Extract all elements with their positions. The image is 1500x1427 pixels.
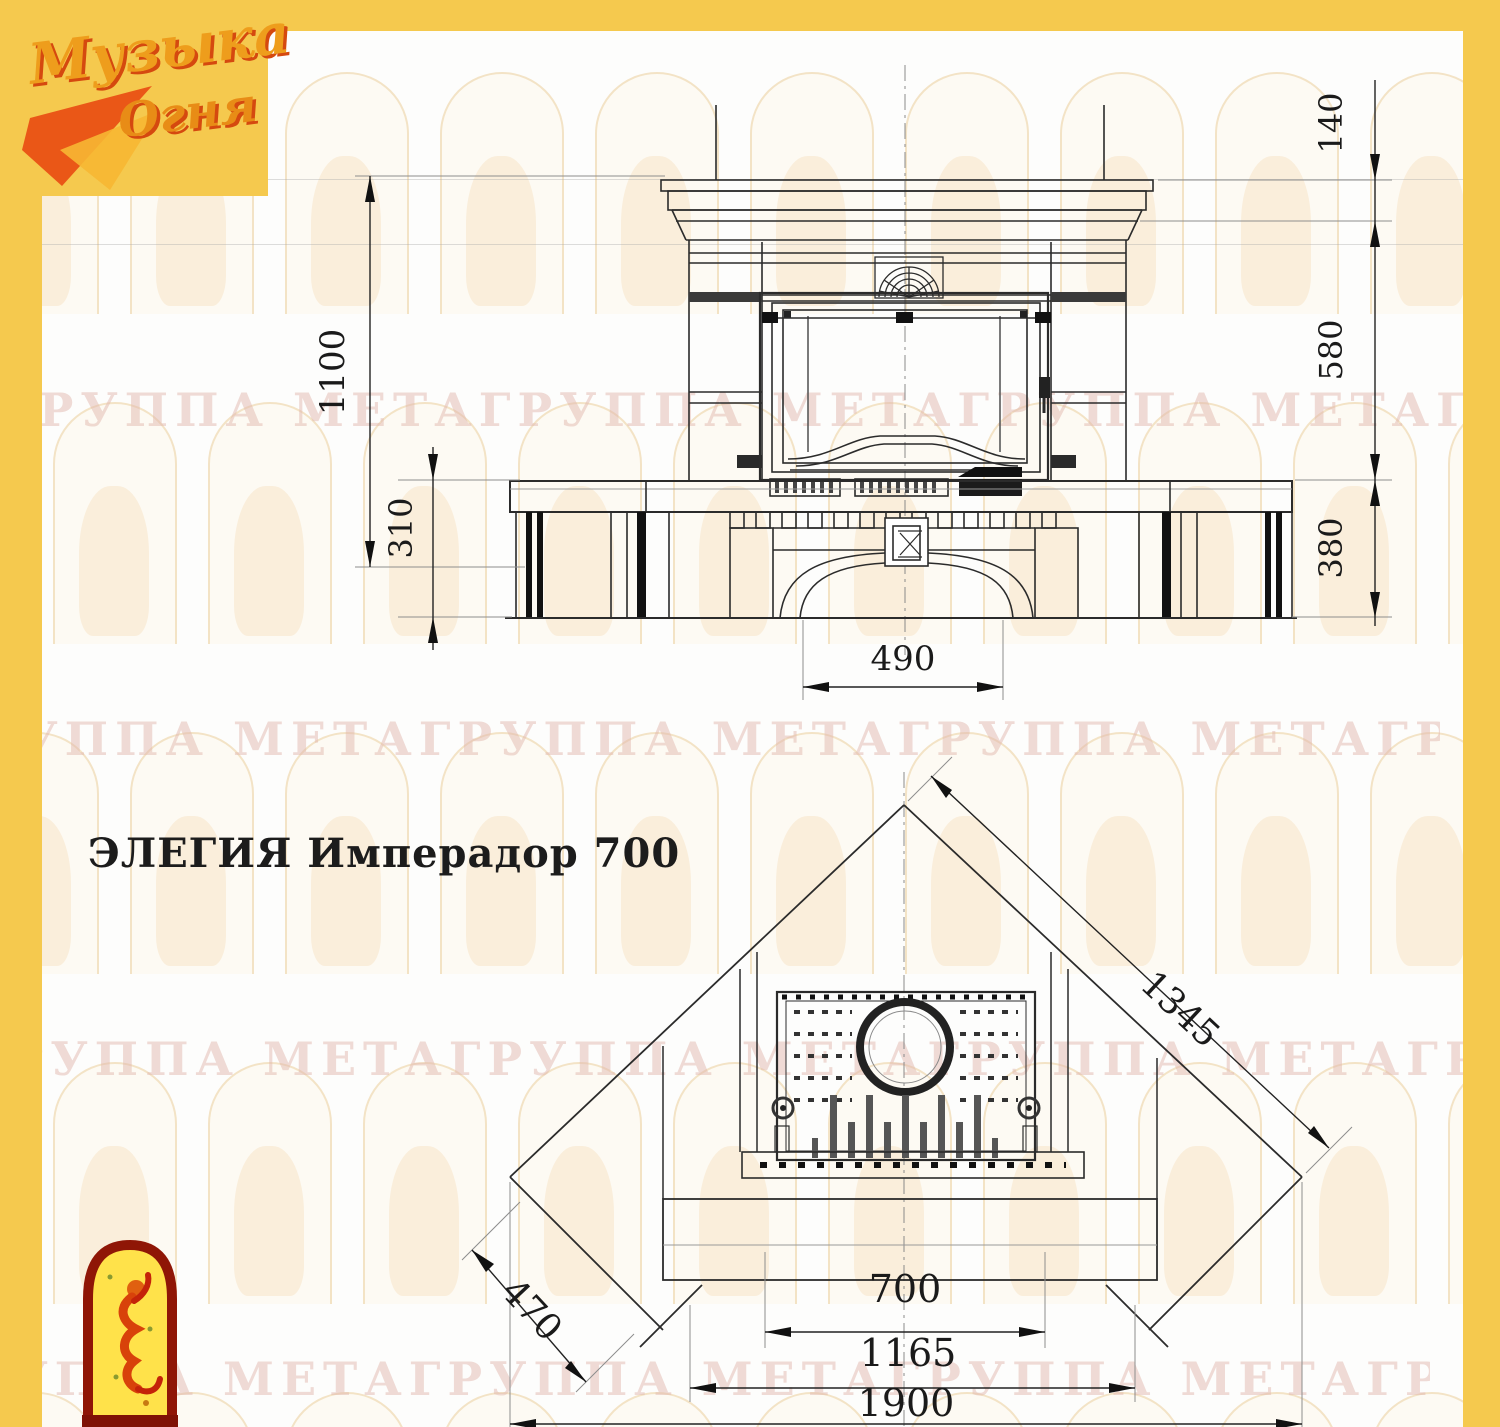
firebox-insert-rear: [742, 992, 1084, 1178]
dim-label-1100: 1100: [313, 329, 353, 416]
dim-label-1900: 1900: [858, 1381, 955, 1425]
dim-label-140: 140: [1312, 92, 1350, 153]
brand-logo: Музыка Огня: [0, 0, 268, 196]
dim-label-580: 580: [1312, 319, 1350, 380]
dim-label-1345: 1345: [1132, 963, 1227, 1055]
log-guard-curve: [788, 436, 1025, 470]
catalog-page: ГРУППА МЕТАГРУППА МЕТАГРУППА МЕТАГРУППА …: [0, 0, 1500, 1427]
corner-walls: [510, 805, 1302, 1330]
frame-border-left: [0, 0, 42, 1427]
dim-label-310: 310: [382, 497, 420, 558]
dim-label-1165: 1165: [860, 1331, 957, 1375]
technical-drawing: 1100 310 490 140 580 380: [0, 0, 1500, 1427]
front-view-dimensions: 1100 310 490 140 580 380: [313, 80, 1392, 700]
chimney-pins: [716, 105, 1104, 180]
page-title: ЭЛЕГИЯ Имперадор 700: [88, 830, 680, 877]
base-pedestal: [505, 512, 1297, 618]
door-handle: [1039, 377, 1050, 398]
grate-pins: [812, 1095, 998, 1158]
flue-outlet: [860, 1002, 950, 1092]
dim-label-490: 490: [871, 639, 936, 679]
breast-panels: [689, 240, 1126, 481]
dim-label-470: 470: [493, 1271, 570, 1349]
mascot-flame-dancer: [80, 1237, 180, 1427]
dim-label-380: 380: [1312, 517, 1350, 578]
frame-border-right: [1463, 0, 1500, 1427]
niche-walls: [663, 952, 1157, 1199]
door-sill-shadow: [958, 467, 1022, 477]
mantel-shelf: [661, 180, 1153, 240]
front-elevation-view: [505, 65, 1297, 655]
dim-label-700: 700: [869, 1267, 942, 1311]
